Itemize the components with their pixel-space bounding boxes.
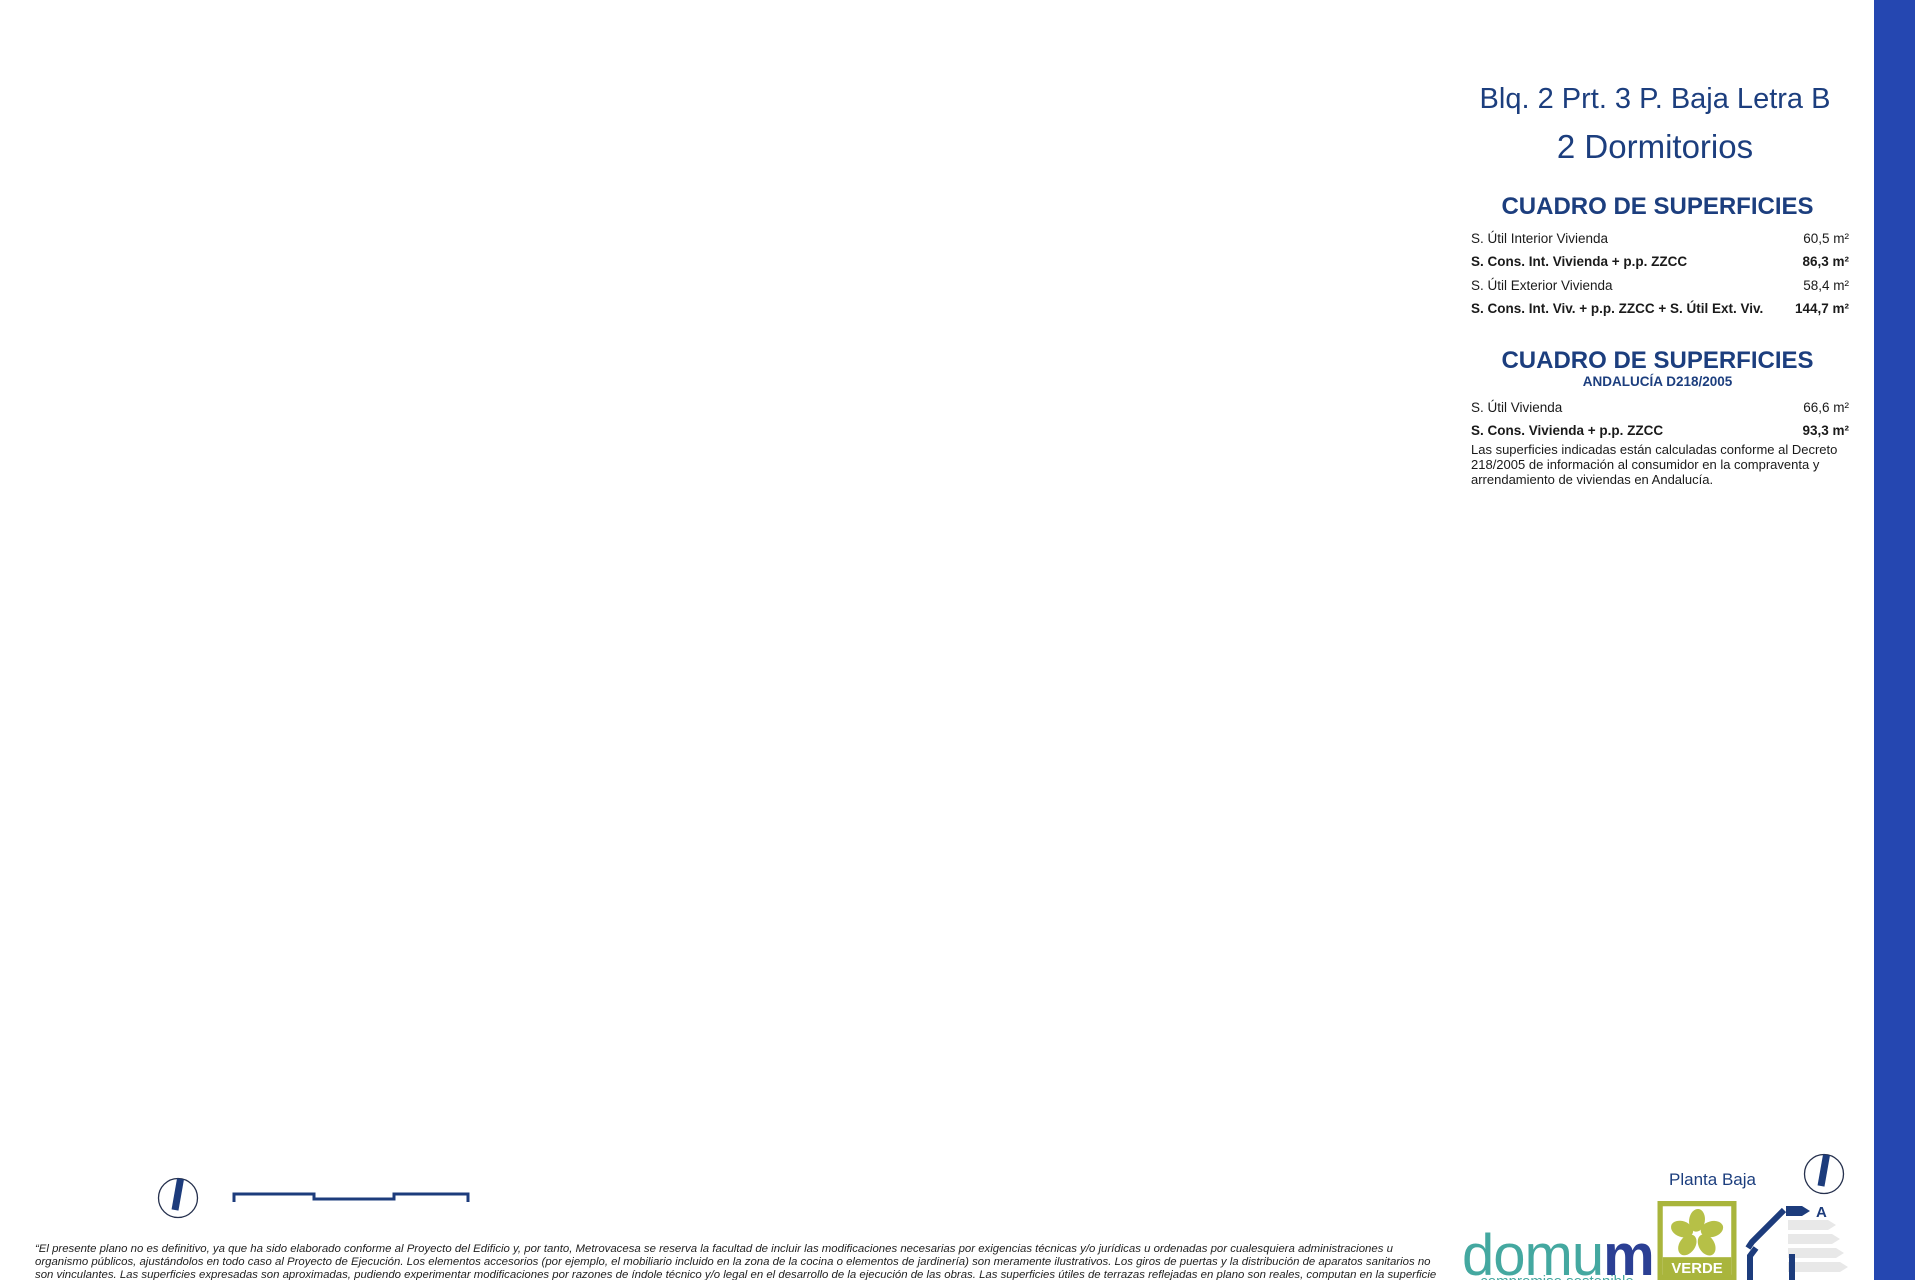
svg-text:A: A	[1816, 1204, 1827, 1221]
svg-text:VERDE: VERDE	[1671, 1260, 1722, 1277]
